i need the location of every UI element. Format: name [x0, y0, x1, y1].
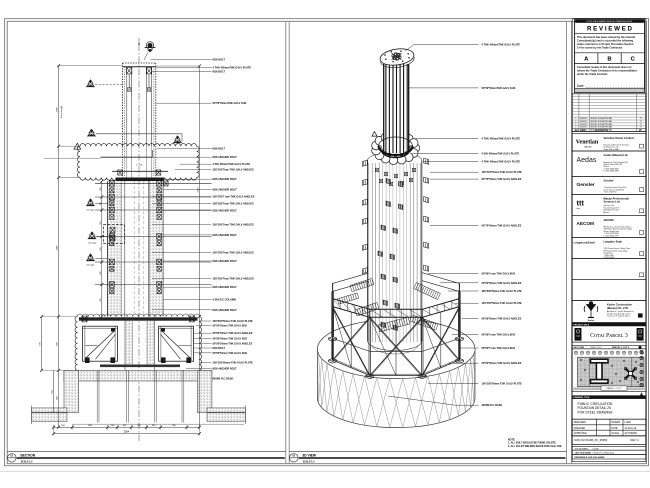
- svg-text:DESCRIPTION: DESCRIPTION: [595, 130, 609, 132]
- svg-text:1 - 1 A: 1 - 1 A: [136, 164, 142, 167]
- svg-text:150*150*7mm THK GALV ANGLES: 150*150*7mm THK GALV ANGLES: [213, 250, 254, 254]
- svg-text:4 THK 450mmTHK GALV PLATE: 4 THK 450mmTHK GALV PLATE: [482, 137, 521, 141]
- svg-text:05/06/15: 05/06/15: [580, 118, 587, 120]
- svg-text:FOR STEEL DRAWING: FOR STEEL DRAWING: [578, 410, 613, 414]
- svg-text:4200M R.C BASE: 4200M R.C BASE: [213, 377, 234, 381]
- svg-text:50*75*50mm THK GALV ANGLES: 50*75*50mm THK GALV ANGLES: [482, 177, 522, 181]
- svg-text:50*50*50mm THK GALV ANGLES: 50*50*50mm THK GALV ANGLES: [213, 331, 253, 335]
- svg-text:Taipa, Macau SAR: Taipa, Macau SAR: [604, 148, 620, 151]
- svg-text:AECOM: AECOM: [604, 218, 615, 222]
- svg-text:50*50*50mm THK GALV ANGLES: 50*50*50mm THK GALV ANGLES: [213, 342, 253, 346]
- svg-text:14-AUG-15: 14-AUG-15: [625, 427, 637, 430]
- svg-text:PARCEL 1 , LOT 2: PARCEL 1 , LOT 2: [607, 387, 622, 390]
- svg-text:4 THK 450mmTHK GALV PLATE: 4 THK 450mmTHK GALV PLATE: [482, 160, 521, 164]
- svg-text:2. ALL FILLET WELDED SHOULD BE: 2. ALL FILLET WELDED SHOULD BE 5mm THK.: [508, 445, 563, 448]
- svg-text:50*50*5 mm THK GALV.SHS: 50*50*5 mm THK GALV.SHS: [482, 333, 516, 337]
- svg-text:SCALE 1:5: SCALE 1:5: [21, 460, 33, 463]
- svg-text:F +853 2833 3299: F +853 2833 3299: [604, 171, 619, 173]
- svg-text:50*50*50mm THK GALV ANGLES: 50*50*50mm THK GALV ANGLES: [482, 281, 522, 285]
- svg-text:1788: 1788: [57, 107, 59, 113]
- svg-text:Langdon Seah: Langdon Seah: [604, 240, 623, 244]
- svg-text:50*50*50mm THK GALV ANGLES: 50*50*50mm THK GALV ANGLES: [482, 316, 522, 320]
- svg-text:Gensler: Gensler: [577, 182, 595, 188]
- svg-text:MACAU: MACAU: [584, 145, 592, 148]
- svg-text:50*50*50mm THK GALV ANGLES: 50*50*50mm THK GALV ANGLES: [482, 361, 522, 365]
- svg-text:DRAWN: DRAWN: [612, 421, 621, 424]
- svg-text:Aedas (Macau) Ltd.: Aedas (Macau) Ltd.: [604, 153, 629, 157]
- svg-text:4: 4: [575, 121, 576, 123]
- svg-text:M16 ANCHOR BOLT: M16 ANCHOR BOLT: [213, 285, 238, 289]
- svg-text:2380: 2380: [57, 245, 59, 251]
- svg-text:A: A: [584, 57, 589, 63]
- svg-text:2: 2: [575, 127, 576, 129]
- svg-text:50*50*50mmTHK GALV SHS: 50*50*50mmTHK GALV SHS: [213, 101, 247, 105]
- svg-text:ISSUED FOR APPROVAL: ISSUED FOR APPROVAL: [590, 123, 612, 126]
- svg-text:C: C: [631, 57, 636, 63]
- svg-text:M16 ANCHOR BOLT: M16 ANCHOR BOLT: [213, 155, 238, 159]
- svg-text:M16 ANCHOR BOLT: M16 ANCHOR BOLT: [213, 259, 238, 263]
- svg-text:Venetian: Venetian: [576, 140, 599, 146]
- svg-text:150*150*7mm THK GALV ANGLES: 150*150*7mm THK GALV ANGLES: [213, 277, 254, 281]
- svg-text:5: 5: [575, 118, 576, 120]
- svg-text:150*150*7mm THK GALV ANGLES: 150*150*7mm THK GALV ANGLES: [213, 202, 254, 206]
- svg-text:50*50*5 mm THK GALV.SHS: 50*50*5 mm THK GALV.SHS: [482, 271, 516, 275]
- svg-text:ISSUED FOR APPROVAL: ISSUED FOR APPROVAL: [590, 120, 612, 123]
- svg-text:5mm (typ): 5mm (typ): [87, 264, 95, 267]
- svg-text:50*75*50mm THK GALV ANGLES: 50*75*50mm THK GALV ANGLES: [482, 223, 522, 227]
- svg-text:REV: C: REV: C: [631, 438, 640, 442]
- svg-text:M16 ANCHOR BOLT: M16 ANCHOR BOLT: [213, 233, 238, 237]
- svg-text:Date :: Date :: [577, 84, 586, 88]
- svg-text:DATE: DATE: [581, 129, 587, 132]
- svg-text:Venetian Orient Limited: Venetian Orient Limited: [604, 136, 634, 140]
- svg-text:M16 BOLT: M16 BOLT: [213, 58, 226, 62]
- svg-text:DESIGNED: DESIGNED: [574, 422, 586, 424]
- svg-text:under the Trade Contract.: under the Trade Contract.: [577, 72, 608, 76]
- svg-text:relieve the Trade Contractor o: relieve the Trade Contractor of its resp…: [577, 68, 638, 72]
- svg-text:Gensler: Gensler: [604, 179, 614, 183]
- svg-text:status referred to in Pr: status referred to in Project Procedure …: [577, 42, 634, 46]
- svg-text:5.4 for action by the Tra: 5.4 for action by the Trade Contractor.: [577, 45, 623, 49]
- svg-text:DWG NO:: DWG NO:: [575, 439, 586, 442]
- svg-text:CHECKED: CHECKED: [574, 428, 586, 430]
- svg-text:150*150*7mm THK GALV ANGLES: 150*150*7mm THK GALV ANGLES: [213, 167, 254, 171]
- svg-text:4 500 R.C COLUMN: 4 500 R.C COLUMN: [213, 297, 237, 301]
- svg-text:DATE: DATE: [612, 427, 618, 430]
- svg-text:05/06/15: 05/06/15: [580, 121, 587, 123]
- svg-text:Macau: Macau: [604, 212, 610, 214]
- svg-text:Langdon&Seah: Langdon&Seah: [574, 241, 595, 245]
- svg-text:05/06/15: 05/06/15: [580, 127, 587, 129]
- svg-text:150*150*50mm THK GALV PLATE: 150*150*50mm THK GALV PLATE: [482, 382, 523, 386]
- svg-text:150*150*50mm THK GALV PLATE: 150*150*50mm THK GALV PLATE: [482, 301, 523, 305]
- svg-text:ISSUED FOR APPROVAL: ISSUED FOR APPROVAL: [590, 126, 612, 129]
- svg-text:50*50*5 mm THK GALV.SHS: 50*50*5 mm THK GALV.SHS: [482, 346, 516, 350]
- svg-text:M16 ANCHOR BOLT: M16 ANCHOR BOLT: [213, 308, 238, 312]
- svg-text:CAD FILE NAME:: CAD FILE NAME:: [575, 452, 592, 455]
- svg-text:REFERENCE CAD FILE NAME:: REFERENCE CAD FILE NAME:: [575, 456, 606, 459]
- svg-text:400*200*50mm THK GALV PLATE: 400*200*50mm THK GALV PLATE: [213, 319, 254, 323]
- svg-text:APPROVED: APPROVED: [574, 432, 587, 435]
- svg-text:4 500 450mmTHK GALV PLATE: 4 500 450mmTHK GALV PLATE: [482, 152, 520, 156]
- svg-text:M16 ANCHOR BOLT: M16 ANCHOR BOLT: [213, 366, 238, 370]
- svg-text:Consultant review of this: Consultant review of this document does …: [577, 65, 632, 69]
- svg-text:M16 BOLT: M16 BOLT: [213, 69, 226, 73]
- svg-text:AECOM: AECOM: [577, 221, 595, 226]
- svg-text:Comercio, 19 andar E, Macau: Comercio, 19 andar E, Macau: [607, 315, 630, 318]
- svg-text:150*150*7 mm THK GALV ANGLES: 150*150*7 mm THK GALV ANGLES: [213, 195, 255, 199]
- svg-text:F +852 3922 9797: F +852 3922 9797: [604, 235, 619, 237]
- svg-text:4 THK 450mmTHK GALV PLATE: 4 THK 450mmTHK GALV PLATE: [482, 43, 521, 47]
- svg-text:Services Ltd.: Services Ltd.: [604, 199, 621, 203]
- svg-text:5mm (typ): 5mm (typ): [88, 242, 96, 245]
- svg-text:3D VIEW: 3D VIEW: [302, 453, 317, 457]
- svg-text:50*50*50mm THK GALV SHS: 50*50*50mm THK GALV SHS: [213, 337, 248, 341]
- svg-text:2694: 2694: [124, 430, 130, 433]
- svg-text:B: B: [607, 57, 611, 63]
- svg-text:Cᴏᴛᴀɪ Pᴀʀᴄᴇʟ 3: Cᴏᴛᴀɪ Pᴀʀᴄᴇʟ 3: [590, 333, 628, 339]
- svg-text:400*200*50mm THK GALV PLATE: 400*200*50mm THK GALV PLATE: [482, 289, 523, 293]
- svg-text:4 500 450mmTHK GALV PLATE: 4 500 450mmTHK GALV PLATE: [213, 162, 251, 166]
- svg-text:4 THK 450mmTHK GALV PLATE: 4 THK 450mmTHK GALV PLATE: [213, 66, 252, 70]
- svg-text:M16 ANCHOR BOLT: M16 ANCHOR BOLT: [213, 177, 238, 181]
- svg-text:5mm (typ): 5mm (typ): [87, 209, 95, 212]
- svg-text:(Lamp height): (Lamp height): [60, 105, 63, 118]
- svg-text:Kadoo: Kadoo: [588, 320, 595, 322]
- svg-text:AS SHOWN: AS SHOWN: [625, 432, 638, 435]
- svg-text:05/06/15: 05/06/15: [580, 124, 587, 126]
- svg-text:SCALE: SCALE: [612, 432, 620, 435]
- svg-text:150*150*50mm THK GALV PLATE: 150*150*50mm THK GALV PLATE: [213, 361, 254, 365]
- svg-text:SECTION: SECTION: [20, 453, 36, 457]
- svg-text:M16 ANCHOR BOLT: M16 ANCHOR BOLT: [213, 209, 238, 213]
- svg-text:LUND: LUND: [625, 422, 632, 424]
- svg-text:M16 BOLT: M16 BOLT: [213, 147, 226, 151]
- svg-text:This document has been rev: This document has been revised by the re…: [577, 35, 635, 39]
- svg-text:(Macau) CO. LTD.: (Macau) CO. LTD.: [607, 306, 629, 310]
- svg-text:ISSUED FOR APPROVAL: ISSUED FOR APPROVAL: [590, 117, 612, 120]
- svg-text:Aedas: Aedas: [577, 157, 597, 164]
- svg-text:5112B_PC_05050.dwg: 5112B_PC_05050.dwg: [593, 453, 615, 455]
- svg-text:ttt: ttt: [577, 199, 585, 208]
- svg-text:T 415.433.3700: T 415.433.3700: [604, 192, 617, 194]
- svg-text:150*150*50mm THK GALV PLATE: 150*150*50mm THK GALV PLATE: [482, 170, 523, 174]
- svg-text:M16 ANCHOR BOLT: M16 ANCHOR BOLT: [213, 188, 238, 192]
- svg-text:SCALE 1:5: SCALE 1:5: [303, 460, 315, 463]
- svg-text:4200M R.C BASE: 4200M R.C BASE: [482, 403, 503, 407]
- svg-text:150*150*7mm THK GALV ANGLES: 150*150*7mm THK GALV ANGLES: [213, 223, 254, 227]
- svg-text:50*50*50mm THK GALV SHS: 50*50*50mm THK GALV SHS: [213, 351, 248, 355]
- svg-text:Consultant(s)(s) and is acc: Consultant(s)(s) and is accorded the fol…: [577, 38, 633, 42]
- svg-text:5112B_PC_05050: 5112B_PC_05050: [586, 438, 608, 442]
- svg-text:R E V I E W E D: R E V I E W E D: [587, 26, 633, 33]
- svg-text:3: 3: [575, 124, 576, 126]
- svg-text:M16 BOLT: M16 BOLT: [213, 346, 226, 350]
- svg-text:50*50*50mm THK GALV SHS: 50*50*50mm THK GALV SHS: [213, 324, 248, 328]
- svg-text:mps: mps: [577, 208, 581, 210]
- svg-text:50*50*50mmTHK GALV SHS: 50*50*50mmTHK GALV SHS: [482, 86, 516, 90]
